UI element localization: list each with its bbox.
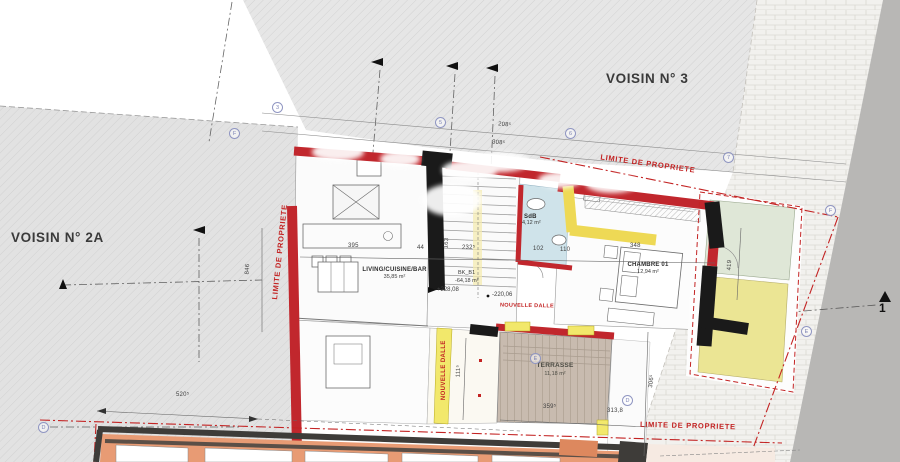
grid-bubble-f2: F <box>825 205 836 216</box>
room-area-living: 35,85 m² <box>352 275 437 281</box>
stair-area: -64,18 m² <box>455 279 479 285</box>
new-slab-label-vertical: NOUVELLE DALLE <box>441 334 447 406</box>
level-mark-living: +228,08 <box>437 287 459 293</box>
dim-846: 846 <box>244 257 252 281</box>
room-label-chambre: CHAMBRE 01 <box>608 262 688 268</box>
parcel-label-voisin-3: VOISIN N° 3 <box>606 72 689 86</box>
level-mark-slab: -220,06 <box>492 292 512 298</box>
dim-232: 232⁵ <box>462 245 475 251</box>
room-label-living: LIVING/CUISINE/BAR <box>352 267 437 273</box>
grid-bubble-f1: F <box>229 128 240 139</box>
dim-348: 348 <box>630 243 641 249</box>
dim-111: 111⁵ <box>455 360 462 382</box>
room-area-sdb: 4,12 m² <box>522 221 541 227</box>
dim-359: 359⁵ <box>543 404 556 410</box>
grid-bubble-7: 7 <box>723 152 734 163</box>
grid-bubble-d1: D <box>622 395 633 406</box>
grid-bubble-6: 6 <box>565 128 576 139</box>
dim-520: 520⁵ <box>176 392 189 398</box>
dim-3138: 313,8 <box>607 408 623 414</box>
room-area-terrasse: 11,18 m² <box>515 372 595 378</box>
dim-419: 419 <box>726 255 733 275</box>
grid-bubble-3: 3 <box>272 102 283 113</box>
stair-code: BK_B1 <box>458 271 475 277</box>
grid-bubble-d2: D <box>38 422 49 433</box>
room-label-terrasse: TERRASSE <box>515 363 595 370</box>
dim-44: 44 <box>417 245 424 251</box>
section-marker-label: 1 <box>879 302 886 315</box>
grid-bubble-e2: E <box>530 353 541 364</box>
floor-plan-linework <box>0 0 900 462</box>
dim-395: 395 <box>348 243 359 249</box>
room-area-chambre: 12,94 m² <box>608 270 688 276</box>
dim-102: 102 <box>533 246 544 252</box>
parcel-voisin-2a-area <box>0 106 298 462</box>
floor-plan-page: VOISIN N° 2A VOISIN N° 3 LIMITE DE PROPR… <box>0 0 900 462</box>
new-slab-label-horizontal: NOUVELLE DALLE <box>500 304 554 311</box>
dim-110: 110 <box>560 247 570 253</box>
parcel-label-voisin-2a: VOISIN N° 2A <box>11 231 104 245</box>
grid-bubble-e1: E <box>801 326 812 337</box>
grid-bubble-5: 5 <box>435 117 446 128</box>
dim-308: 308⁵ <box>492 139 506 146</box>
dim-208: 208⁵ <box>498 121 512 128</box>
